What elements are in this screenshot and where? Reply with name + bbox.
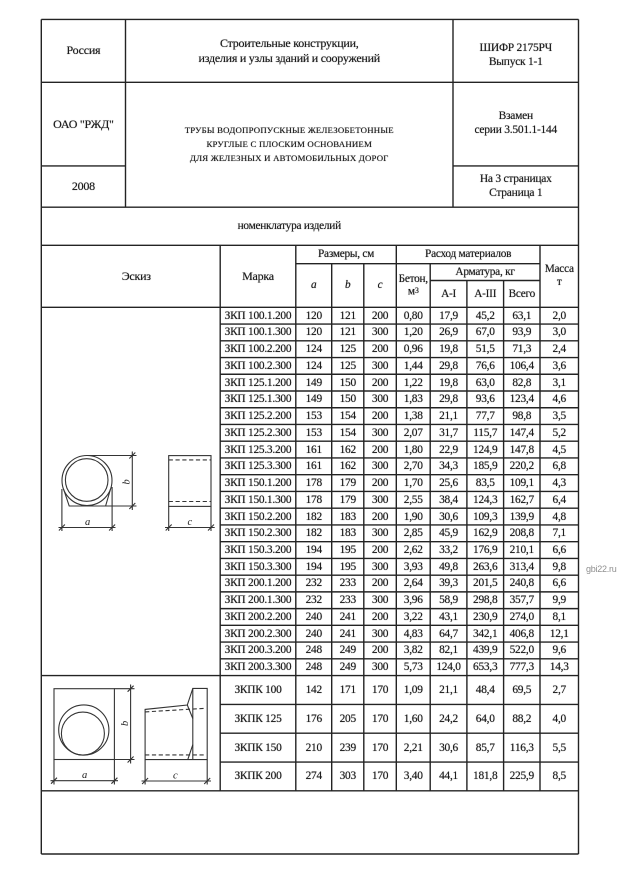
- svg-text:a: a: [85, 517, 90, 528]
- svg-text:b: b: [122, 480, 133, 485]
- svg-text:b: b: [120, 721, 131, 726]
- svg-text:c: c: [188, 517, 193, 528]
- svg-text:c: c: [173, 770, 178, 781]
- svg-text:a: a: [82, 770, 87, 781]
